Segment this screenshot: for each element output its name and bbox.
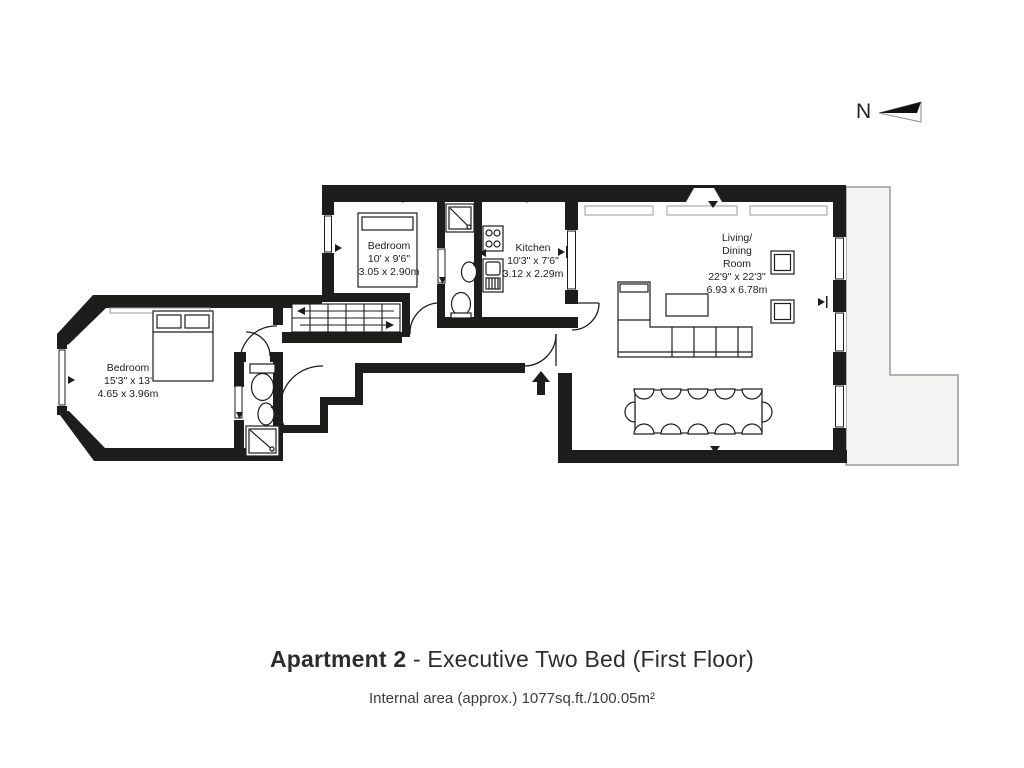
window-partition-kitchen — [565, 230, 578, 290]
floorplan-title: Apartment 2 - Executive Two Bed (First F… — [0, 646, 1024, 673]
room-name: Dining — [707, 245, 768, 258]
window-bedroom-small — [322, 215, 334, 253]
door-arc-ensuite — [246, 332, 270, 356]
room-label-living: Living/ Dining Room 22'9" x 22'3" 6.93 x… — [707, 232, 768, 297]
bed-symbol-large — [153, 311, 213, 381]
sink-symbol — [462, 262, 477, 282]
door-arc-recess — [280, 366, 323, 428]
sink-symbol-2 — [258, 403, 274, 425]
room-dim-metric: 3.05 x 2.90m — [359, 266, 420, 279]
floorplan-subtitle: Internal area (approx.) 1077sq.ft./100.0… — [0, 690, 1024, 707]
stairs — [292, 304, 400, 332]
window-bay — [57, 349, 67, 406]
window-living-3 — [833, 385, 846, 428]
shower-symbol-2 — [246, 426, 279, 456]
room-name: Living/ — [707, 232, 768, 245]
entry-arrow — [532, 371, 550, 395]
shower-symbol — [446, 204, 474, 232]
coffee-table-symbol — [666, 294, 708, 316]
door-arc-bedroom-small — [410, 303, 437, 334]
room-dim-metric: 4.65 x 3.96m — [98, 388, 159, 401]
floorplan-page: N Bedroom 10' x 9'6" 3.05 x 2.90m Kitche… — [0, 0, 1024, 768]
room-name: Bedroom — [359, 240, 420, 253]
room-dim-imperial: 10'3" x 7'6" — [503, 255, 564, 268]
room-label-kitchen: Kitchen 10'3" x 7'6" 3.12 x 2.29m — [503, 242, 564, 281]
window-living-1 — [833, 237, 846, 280]
north-label: N — [856, 100, 871, 124]
room-dim-metric: 6.93 x 6.78m — [707, 284, 768, 297]
window-living-2 — [833, 312, 846, 352]
room-dim-imperial: 15'3" x 13' — [98, 375, 159, 388]
room-label-bedroom-small: Bedroom 10' x 9'6" 3.05 x 2.90m — [359, 240, 420, 279]
room-name: Bedroom — [98, 362, 159, 375]
side-table-symbol — [771, 251, 794, 323]
room-dim-imperial: 10' x 9'6" — [359, 253, 420, 266]
room-dim-imperial: 22'9" x 22'3" — [707, 271, 768, 284]
north-arrow-icon — [879, 102, 921, 122]
toilet-symbol — [451, 293, 471, 319]
room-name: Kitchen — [503, 242, 564, 255]
hob-symbol — [483, 226, 503, 251]
floorplan-title-descriptor: - Executive Two Bed (First Floor) — [406, 646, 754, 672]
room-dim-metric: 3.12 x 2.29m — [503, 268, 564, 281]
toilet-symbol-2 — [250, 364, 275, 401]
floorplan-title-apartment: Apartment 2 — [270, 646, 406, 672]
room-label-bedroom-large: Bedroom 15'3" x 13' 4.65 x 3.96m — [98, 362, 159, 401]
door-arc-entrance — [524, 334, 556, 366]
room-name: Room — [707, 258, 768, 271]
terrace-area — [846, 187, 958, 465]
kitchen-sink-symbol — [483, 259, 503, 292]
